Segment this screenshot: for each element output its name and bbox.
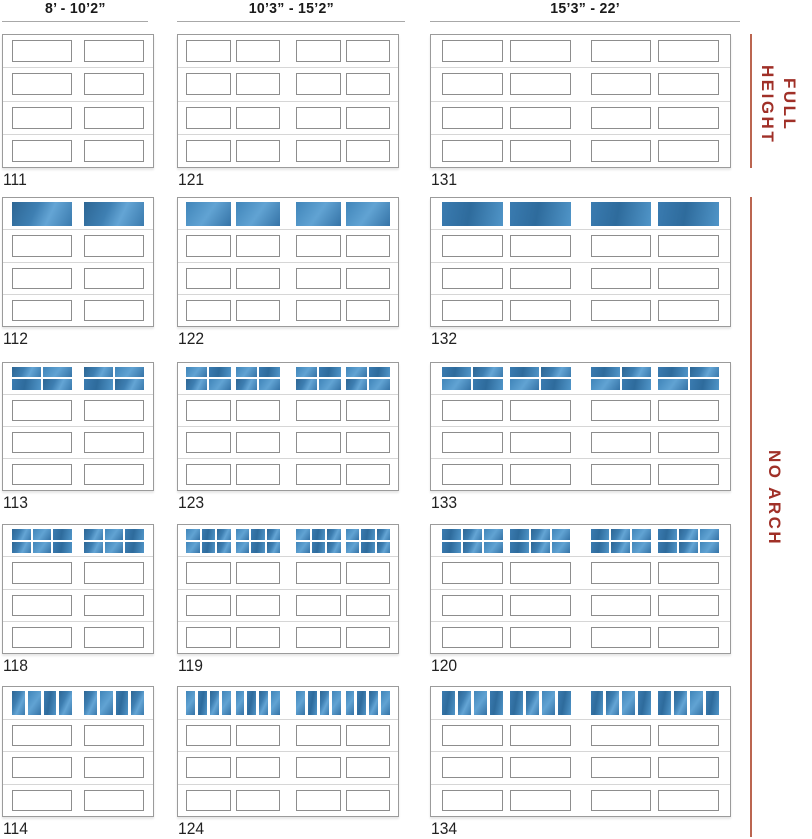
door-panel — [236, 400, 281, 421]
door-section — [3, 589, 153, 621]
door-cell: 120 — [430, 524, 731, 654]
window-pane — [622, 379, 651, 390]
door-panel — [84, 300, 144, 321]
door-window — [296, 367, 341, 391]
window-pane — [296, 529, 310, 540]
door-panel — [591, 300, 652, 321]
door-panel — [510, 757, 571, 778]
door-section — [431, 229, 730, 261]
door-section — [3, 751, 153, 784]
window-pane — [12, 367, 41, 378]
door-window — [84, 202, 144, 226]
door-style-number: 124 — [178, 819, 204, 839]
door-panel — [591, 562, 652, 583]
door-window — [510, 691, 571, 715]
garage-door-diagram — [2, 686, 154, 817]
door-section — [178, 687, 398, 719]
window-pane — [271, 691, 280, 715]
door-panel — [442, 464, 503, 485]
door-section — [431, 751, 730, 784]
door-section — [178, 101, 398, 134]
door-section — [431, 426, 730, 458]
door-style-number: 112 — [3, 329, 28, 349]
door-cell: 123 — [177, 362, 399, 491]
door-style-number: 118 — [3, 656, 28, 676]
door-window — [658, 691, 719, 715]
door-panel — [236, 268, 281, 289]
window-pane — [251, 542, 265, 553]
door-window — [12, 691, 72, 715]
door-panel — [84, 464, 144, 485]
door-panel — [186, 268, 231, 289]
door-panel — [442, 73, 503, 95]
garage-door-diagram — [2, 34, 154, 168]
door-panel — [186, 300, 231, 321]
door-panel — [84, 790, 144, 811]
full-height-label: FULL HEIGHT — [756, 60, 800, 150]
window-pane — [59, 691, 72, 715]
door-panel — [346, 235, 391, 256]
window-pane — [542, 691, 555, 715]
door-panel — [591, 595, 652, 616]
window-pane — [296, 379, 317, 390]
window-pane — [259, 691, 268, 715]
window-pane — [484, 529, 503, 540]
door-panel — [510, 140, 571, 162]
door-section — [178, 784, 398, 817]
door-panel — [12, 595, 72, 616]
door-window — [12, 529, 72, 553]
window-pane — [251, 529, 265, 540]
door-panel — [510, 627, 571, 648]
door-section — [431, 262, 730, 294]
door-panel — [236, 790, 281, 811]
door-panel — [510, 300, 571, 321]
door-panel — [442, 627, 503, 648]
window-pane — [236, 379, 257, 390]
window-pane — [198, 691, 207, 715]
door-panel — [296, 140, 341, 162]
door-section — [431, 363, 730, 394]
door-panel — [236, 73, 281, 95]
window-pane — [377, 529, 391, 540]
door-window — [296, 202, 341, 226]
door-section — [178, 294, 398, 326]
door-panel — [84, 757, 144, 778]
window-pane — [490, 691, 503, 715]
window-pane — [308, 691, 317, 715]
door-panel — [296, 432, 341, 453]
garage-door-diagram — [177, 524, 399, 654]
window-pane — [381, 691, 390, 715]
door-window — [84, 691, 144, 715]
window-pane — [442, 202, 503, 226]
door-panel — [591, 73, 652, 95]
door-panel — [442, 40, 503, 62]
window-pane — [658, 542, 677, 553]
window-pane — [84, 691, 97, 715]
door-panel — [186, 400, 231, 421]
door-cell: 133 — [430, 362, 731, 491]
door-section — [3, 394, 153, 426]
door-window — [510, 202, 571, 226]
door-window — [296, 529, 341, 553]
door-panel — [84, 268, 144, 289]
door-panel — [510, 400, 571, 421]
door-panel — [236, 627, 281, 648]
door-panel — [296, 464, 341, 485]
window-pane — [115, 379, 144, 390]
window-pane — [259, 367, 280, 378]
door-section — [178, 229, 398, 261]
door-panel — [510, 40, 571, 62]
window-pane — [690, 379, 719, 390]
door-panel — [236, 595, 281, 616]
door-section — [3, 262, 153, 294]
window-pane — [84, 379, 113, 390]
door-section — [178, 363, 398, 394]
door-section — [178, 134, 398, 167]
window-pane — [622, 691, 635, 715]
door-section — [431, 719, 730, 752]
door-panel — [84, 235, 144, 256]
door-panel — [346, 140, 391, 162]
window-pane — [552, 529, 571, 540]
window-pane — [53, 542, 72, 553]
door-section — [431, 35, 730, 67]
door-section — [3, 556, 153, 588]
door-section — [3, 426, 153, 458]
window-pane — [202, 529, 216, 540]
door-style-number: 134 — [431, 819, 457, 839]
door-panel — [658, 790, 719, 811]
door-panel — [658, 400, 719, 421]
window-pane — [473, 367, 502, 378]
door-panel — [658, 235, 719, 256]
window-pane — [658, 379, 687, 390]
door-window — [84, 529, 144, 553]
door-panel — [510, 235, 571, 256]
door-cell: 111 — [2, 34, 154, 168]
door-panel — [510, 73, 571, 95]
window-pane — [247, 691, 256, 715]
door-panel — [296, 400, 341, 421]
door-panel — [12, 725, 72, 746]
door-cell: 121 — [177, 34, 399, 168]
door-panel — [658, 40, 719, 62]
door-section — [178, 426, 398, 458]
door-panel — [84, 432, 144, 453]
window-pane — [346, 202, 391, 226]
window-pane — [679, 529, 698, 540]
door-style-number: 132 — [431, 329, 457, 349]
window-pane — [611, 542, 630, 553]
door-panel — [186, 140, 231, 162]
door-panel — [442, 595, 503, 616]
window-pane — [369, 367, 390, 378]
door-section — [3, 687, 153, 719]
window-pane — [12, 202, 72, 226]
door-panel — [591, 107, 652, 129]
door-panel — [510, 107, 571, 129]
door-section — [178, 525, 398, 556]
window-pane — [202, 542, 216, 553]
door-cell: 122 — [177, 197, 399, 327]
window-pane — [357, 691, 366, 715]
door-panel — [236, 757, 281, 778]
door-section — [431, 784, 730, 817]
door-panel — [346, 725, 391, 746]
door-cell: 113 — [2, 362, 154, 491]
door-panel — [591, 40, 652, 62]
door-panel — [296, 757, 341, 778]
window-pane — [84, 542, 103, 553]
door-section — [178, 394, 398, 426]
door-panel — [236, 432, 281, 453]
door-panel — [658, 627, 719, 648]
door-panel — [442, 107, 503, 129]
door-window — [236, 202, 281, 226]
garage-door-diagram — [2, 197, 154, 327]
door-section — [178, 621, 398, 653]
window-pane — [674, 691, 687, 715]
window-pane — [541, 367, 570, 378]
door-panel — [186, 757, 231, 778]
window-pane — [591, 691, 604, 715]
door-panel — [346, 595, 391, 616]
door-window — [186, 367, 231, 391]
door-window — [346, 202, 391, 226]
door-panel — [236, 235, 281, 256]
door-section — [431, 687, 730, 719]
window-pane — [622, 367, 651, 378]
door-cell: 119 — [177, 524, 399, 654]
garage-door-diagram — [177, 34, 399, 168]
door-panel — [658, 300, 719, 321]
window-pane — [296, 367, 317, 378]
door-panel — [12, 140, 72, 162]
door-panel — [591, 400, 652, 421]
door-panel — [186, 432, 231, 453]
door-section — [3, 198, 153, 229]
door-section — [431, 621, 730, 653]
window-pane — [217, 542, 231, 553]
door-panel — [186, 627, 231, 648]
door-panel — [442, 400, 503, 421]
window-pane — [267, 542, 281, 553]
window-pane — [105, 542, 124, 553]
door-window — [442, 202, 503, 226]
window-pane — [632, 529, 651, 540]
window-pane — [12, 379, 41, 390]
door-window — [236, 529, 281, 553]
door-panel — [591, 235, 652, 256]
door-panel — [442, 725, 503, 746]
door-window — [236, 691, 281, 715]
door-section — [3, 719, 153, 752]
door-window — [296, 691, 341, 715]
garage-door-diagram — [430, 686, 731, 817]
window-pane — [209, 379, 230, 390]
door-cell: 132 — [430, 197, 731, 327]
door-panel — [346, 627, 391, 648]
door-section — [431, 198, 730, 229]
door-section — [431, 458, 730, 490]
door-panel — [186, 235, 231, 256]
door-window — [658, 529, 719, 553]
window-pane — [33, 542, 52, 553]
window-pane — [658, 202, 719, 226]
door-panel — [84, 725, 144, 746]
door-panel — [346, 300, 391, 321]
garage-door-diagram — [430, 197, 731, 327]
door-panel — [186, 725, 231, 746]
window-pane — [84, 529, 103, 540]
door-section — [431, 589, 730, 621]
door-style-number: 133 — [431, 493, 457, 513]
window-pane — [442, 529, 461, 540]
door-panel — [346, 757, 391, 778]
door-section — [3, 621, 153, 653]
window-pane — [12, 529, 31, 540]
door-section — [431, 101, 730, 134]
door-panel — [296, 107, 341, 129]
door-section — [431, 134, 730, 167]
window-pane — [510, 202, 571, 226]
window-pane — [700, 529, 719, 540]
door-panel — [510, 562, 571, 583]
door-window — [442, 529, 503, 553]
door-section — [178, 67, 398, 100]
door-panel — [296, 790, 341, 811]
door-panel — [591, 627, 652, 648]
window-pane — [131, 691, 144, 715]
door-panel — [658, 73, 719, 95]
column-header-large: 15’3” - 22’ — [430, 0, 740, 22]
door-panel — [84, 107, 144, 129]
window-pane — [526, 691, 539, 715]
door-panel — [12, 73, 72, 95]
window-pane — [484, 542, 503, 553]
window-pane — [638, 691, 651, 715]
garage-door-diagram — [430, 524, 731, 654]
window-pane — [606, 691, 619, 715]
door-window — [346, 691, 391, 715]
window-pane — [186, 379, 207, 390]
door-section — [431, 394, 730, 426]
door-section — [3, 525, 153, 556]
column-header-medium: 10’3” - 15’2” — [177, 0, 405, 22]
door-section — [178, 262, 398, 294]
door-panel — [12, 757, 72, 778]
door-style-number: 121 — [178, 170, 204, 190]
window-pane — [125, 529, 144, 540]
door-panel — [236, 725, 281, 746]
window-pane — [84, 202, 144, 226]
window-pane — [267, 529, 281, 540]
door-panel — [186, 107, 231, 129]
window-pane — [236, 367, 257, 378]
door-window — [12, 202, 72, 226]
window-pane — [591, 202, 652, 226]
window-pane — [458, 691, 471, 715]
door-panel — [510, 464, 571, 485]
door-section — [3, 134, 153, 167]
door-cell: 134 — [430, 686, 731, 817]
door-panel — [591, 757, 652, 778]
door-panel — [84, 40, 144, 62]
door-panel — [12, 400, 72, 421]
door-panel — [186, 790, 231, 811]
door-panel — [296, 40, 341, 62]
window-pane — [658, 367, 687, 378]
door-panel — [84, 627, 144, 648]
window-pane — [43, 379, 72, 390]
door-panel — [236, 140, 281, 162]
door-panel — [658, 432, 719, 453]
window-pane — [346, 529, 360, 540]
door-panel — [236, 40, 281, 62]
door-panel — [591, 268, 652, 289]
door-panel — [346, 562, 391, 583]
door-panel — [658, 107, 719, 129]
window-pane — [84, 367, 113, 378]
window-pane — [327, 542, 341, 553]
door-panel — [346, 400, 391, 421]
window-pane — [658, 691, 671, 715]
window-pane — [12, 542, 31, 553]
window-pane — [100, 691, 113, 715]
door-panel — [84, 140, 144, 162]
window-pane — [327, 529, 341, 540]
window-pane — [442, 691, 455, 715]
door-panel — [186, 73, 231, 95]
door-panel — [236, 562, 281, 583]
window-pane — [474, 691, 487, 715]
door-cell: 118 — [2, 524, 154, 654]
door-section — [178, 198, 398, 229]
window-pane — [442, 367, 471, 378]
door-section — [178, 35, 398, 67]
door-section — [178, 589, 398, 621]
door-panel — [296, 268, 341, 289]
window-pane — [510, 691, 523, 715]
window-pane — [44, 691, 57, 715]
door-section — [178, 719, 398, 752]
door-panel — [346, 73, 391, 95]
door-panel — [591, 790, 652, 811]
window-pane — [332, 691, 341, 715]
door-window — [186, 691, 231, 715]
door-style-chart: 8’ - 10’2” 10’3” - 15’2” 15’3” - 22’ 111… — [0, 0, 812, 839]
window-pane — [186, 529, 200, 540]
door-section — [3, 784, 153, 817]
window-pane — [679, 542, 698, 553]
door-panel — [591, 725, 652, 746]
garage-door-diagram — [430, 362, 731, 491]
window-pane — [463, 542, 482, 553]
door-style-number: 113 — [3, 493, 28, 513]
door-panel — [12, 432, 72, 453]
window-pane — [346, 691, 355, 715]
door-panel — [591, 140, 652, 162]
window-pane — [115, 367, 144, 378]
window-pane — [209, 367, 230, 378]
door-section — [3, 35, 153, 67]
window-pane — [12, 691, 25, 715]
door-panel — [442, 562, 503, 583]
window-pane — [591, 379, 620, 390]
